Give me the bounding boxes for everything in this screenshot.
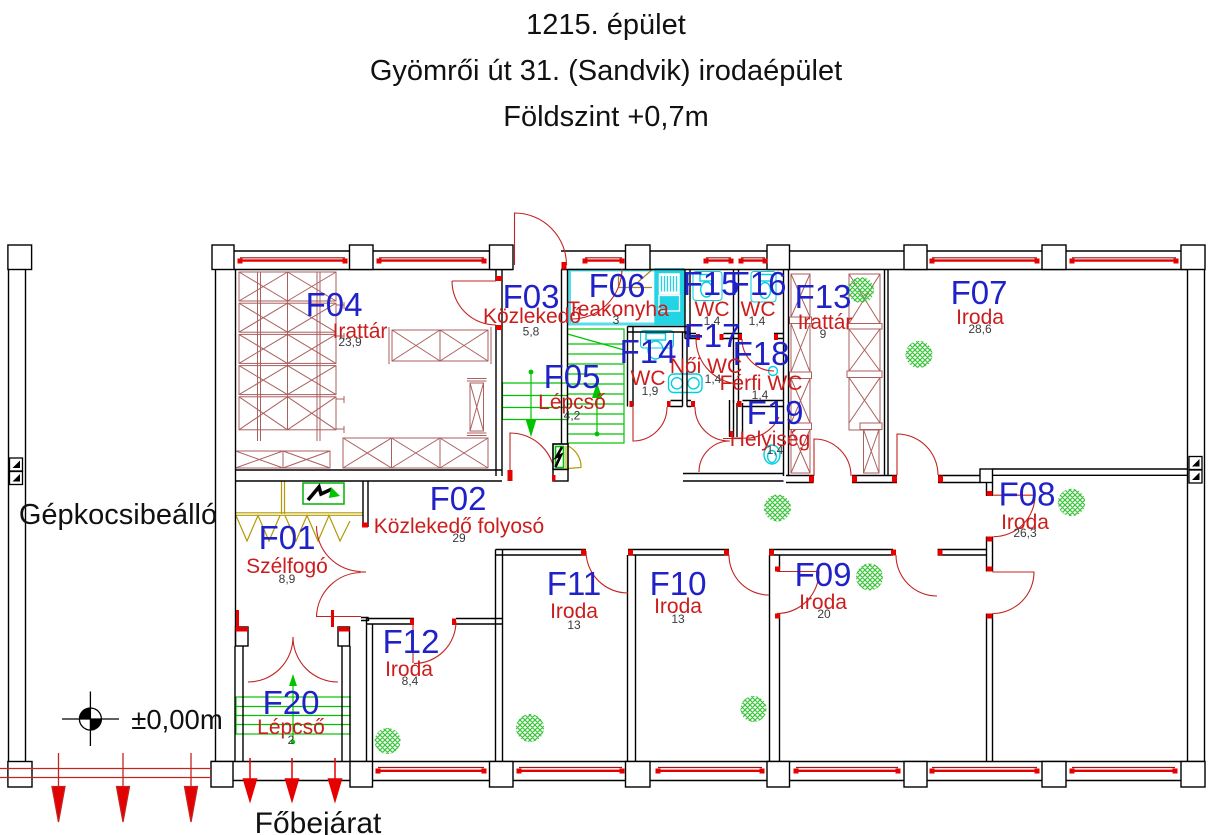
svg-text:9: 9 — [820, 327, 827, 341]
svg-text:1,4: 1,4 — [752, 388, 769, 402]
svg-text:2: 2 — [288, 733, 295, 747]
svg-text:1,4: 1,4 — [767, 443, 784, 457]
svg-text:F16: F16 — [730, 265, 787, 302]
svg-text:3: 3 — [613, 313, 620, 327]
svg-text:8,4: 8,4 — [402, 674, 419, 688]
svg-text:F09: F09 — [795, 556, 852, 593]
svg-text:F04: F04 — [306, 286, 363, 323]
svg-text:13: 13 — [567, 618, 581, 632]
svg-text:Gépkocsibeálló: Gépkocsibeálló — [19, 499, 217, 531]
svg-text:1,9: 1,9 — [642, 384, 659, 398]
svg-text:13: 13 — [671, 612, 685, 626]
svg-text:Földszint +0,7m: Földszint +0,7m — [503, 101, 709, 133]
svg-text:5,8: 5,8 — [523, 325, 540, 339]
svg-text:F14: F14 — [620, 333, 677, 370]
svg-text:23,9: 23,9 — [338, 335, 362, 349]
svg-text:1,4: 1,4 — [705, 372, 722, 386]
svg-text:8,9: 8,9 — [279, 572, 296, 586]
svg-text:F05: F05 — [544, 358, 601, 395]
svg-text:1215. épület: 1215. épület — [526, 9, 686, 41]
svg-text:F02: F02 — [430, 480, 487, 517]
svg-text:F08: F08 — [999, 476, 1056, 513]
svg-text:F11: F11 — [547, 565, 601, 602]
svg-text:20: 20 — [817, 607, 831, 621]
svg-text:F13: F13 — [795, 278, 852, 315]
svg-text:26,3: 26,3 — [1013, 526, 1037, 540]
svg-text:28,6: 28,6 — [968, 322, 992, 336]
svg-text:Gyömrői út 31. (Sandvik) iroda: Gyömrői út 31. (Sandvik) irodaépület — [370, 55, 842, 87]
svg-text:F12: F12 — [383, 623, 440, 660]
svg-text:29: 29 — [452, 531, 466, 545]
svg-text:F01: F01 — [259, 519, 316, 556]
svg-text:1,4: 1,4 — [704, 314, 721, 328]
svg-text:1,4: 1,4 — [749, 314, 766, 328]
svg-text:Főbejárat: Főbejárat — [255, 807, 382, 835]
svg-text:±0,00m: ±0,00m — [131, 704, 223, 735]
svg-text:4,2: 4,2 — [564, 409, 581, 423]
